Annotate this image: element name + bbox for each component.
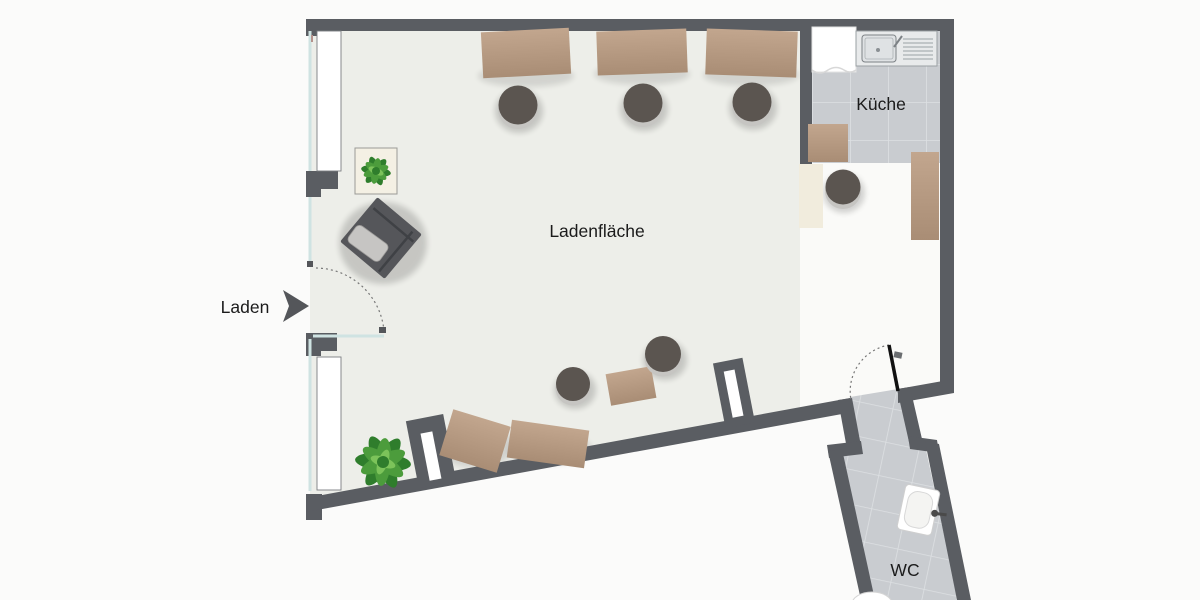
sideboard xyxy=(911,152,939,240)
stool xyxy=(556,367,591,406)
table xyxy=(705,28,798,77)
stool xyxy=(498,86,538,130)
bench xyxy=(799,164,823,228)
stool xyxy=(732,83,772,127)
stool xyxy=(645,336,682,377)
wall-right xyxy=(940,19,954,392)
wall-pier-left-upper-base xyxy=(306,171,321,197)
floor-plan: Ladenfläche Küche WC Laden xyxy=(0,0,1200,600)
kitchen-table xyxy=(808,124,848,162)
main-room-label: Ladenfläche xyxy=(549,221,644,241)
kitchen-sink-unit xyxy=(856,31,937,66)
entrance-label: Laden xyxy=(221,297,270,317)
stool xyxy=(623,84,663,128)
kitchen-cabinet xyxy=(812,27,856,73)
wc-label: WC xyxy=(890,560,919,580)
table xyxy=(481,28,571,79)
table xyxy=(596,28,687,75)
door-hinge-mark xyxy=(307,261,313,267)
potted-plant xyxy=(355,148,397,194)
kitchen-label: Küche xyxy=(856,94,906,114)
window-left-lower xyxy=(317,357,341,490)
stool xyxy=(825,170,861,210)
window-left-upper xyxy=(317,31,341,171)
door-leaf-end-mark xyxy=(379,327,386,333)
